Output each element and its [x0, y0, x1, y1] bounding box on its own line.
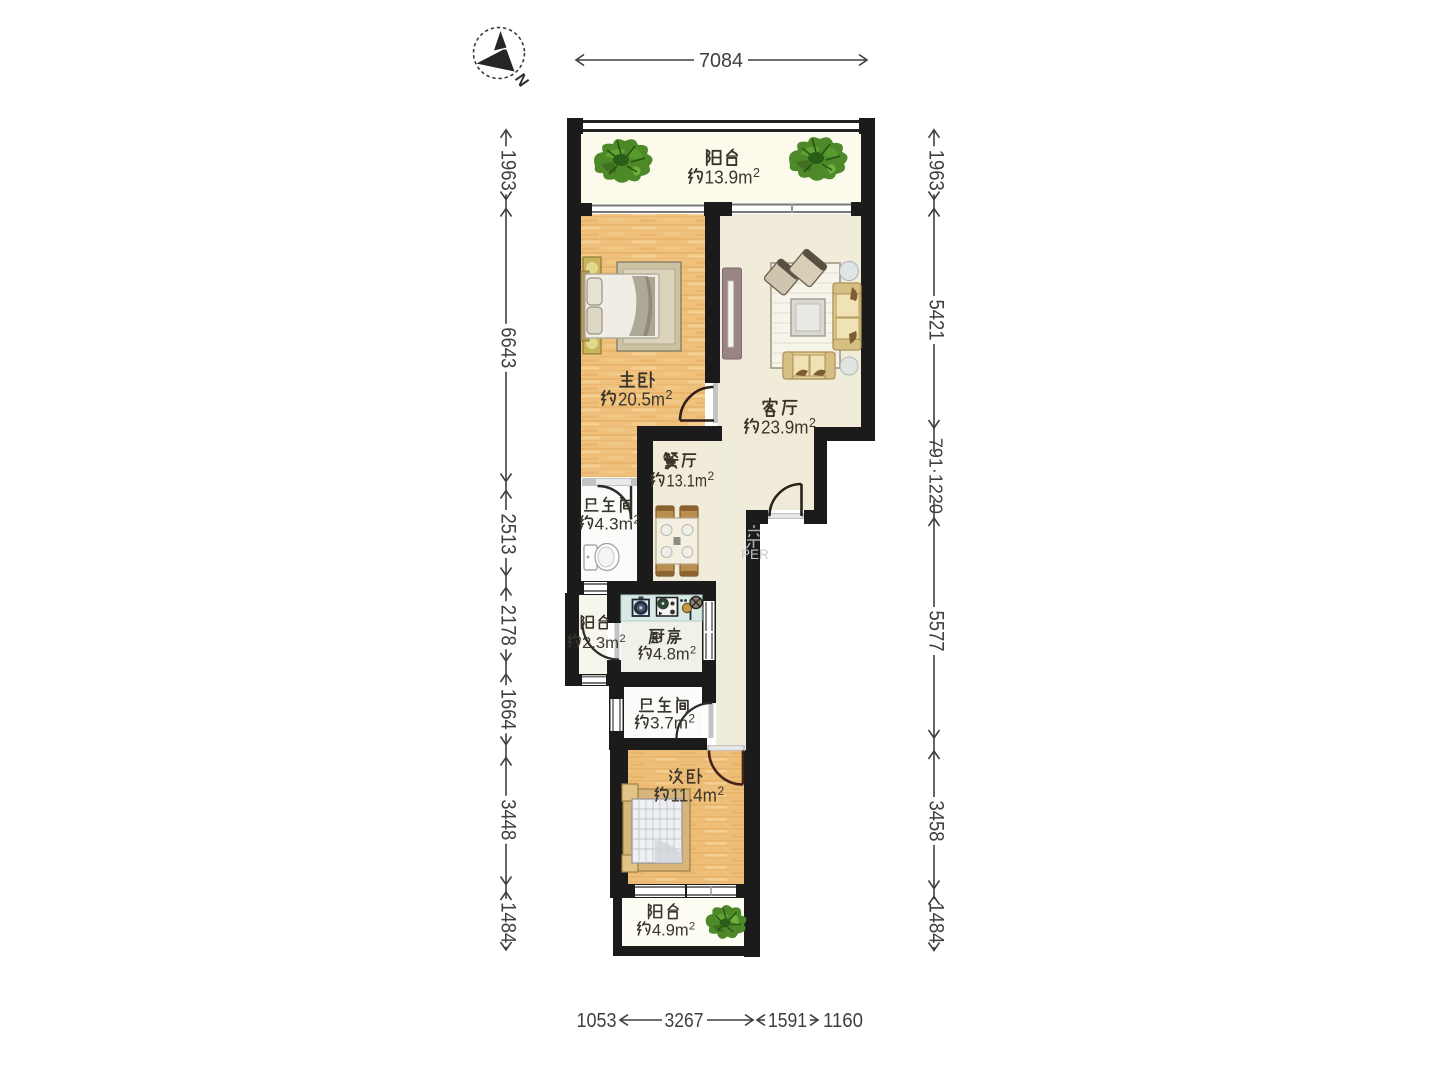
svg-text:1484: 1484	[497, 902, 520, 943]
svg-text:11.4m: 11.4m	[671, 786, 718, 806]
svg-text:2: 2	[718, 784, 725, 798]
svg-text:1664: 1664	[497, 689, 520, 730]
svg-text:2: 2	[666, 388, 673, 402]
svg-text:4.9m: 4.9m	[652, 922, 689, 940]
svg-text:1963: 1963	[497, 150, 520, 191]
svg-text:3.7m: 3.7m	[650, 714, 688, 733]
svg-text:2.3m: 2.3m	[582, 635, 619, 652]
svg-text:2: 2	[634, 515, 640, 527]
svg-text:3267: 3267	[665, 1009, 704, 1032]
svg-text:2: 2	[689, 921, 695, 933]
svg-text:2178: 2178	[497, 605, 520, 646]
svg-text:2: 2	[753, 166, 760, 180]
svg-text:13.1m: 13.1m	[667, 471, 708, 491]
svg-text:1484: 1484	[925, 903, 948, 944]
svg-text:1963: 1963	[925, 150, 948, 191]
svg-text:3448: 3448	[497, 799, 520, 840]
svg-text:5577: 5577	[925, 611, 948, 652]
svg-text:791·1220: 791·1220	[926, 438, 947, 514]
svg-text:2513: 2513	[497, 514, 520, 555]
svg-text:2: 2	[620, 633, 626, 645]
svg-text:N: N	[511, 71, 532, 90]
svg-text:3458: 3458	[925, 801, 948, 842]
svg-text:2: 2	[690, 645, 696, 657]
svg-text:5421: 5421	[925, 300, 948, 341]
svg-text:6643: 6643	[497, 327, 520, 368]
svg-text:2: 2	[809, 416, 816, 430]
svg-text:4.3m: 4.3m	[595, 515, 634, 534]
svg-text:7084: 7084	[699, 49, 743, 72]
svg-text:20.5m: 20.5m	[618, 389, 665, 410]
svg-text:2: 2	[708, 469, 715, 483]
svg-text:PER: PER	[741, 547, 769, 562]
svg-text:23.9m: 23.9m	[761, 417, 809, 438]
svg-text:13.9m: 13.9m	[705, 167, 753, 188]
svg-text:1053: 1053	[577, 1009, 617, 1032]
svg-text:1160: 1160	[823, 1009, 863, 1032]
svg-text:2: 2	[689, 714, 695, 726]
svg-text:4.8m: 4.8m	[653, 646, 690, 664]
svg-text:1591: 1591	[768, 1009, 807, 1032]
